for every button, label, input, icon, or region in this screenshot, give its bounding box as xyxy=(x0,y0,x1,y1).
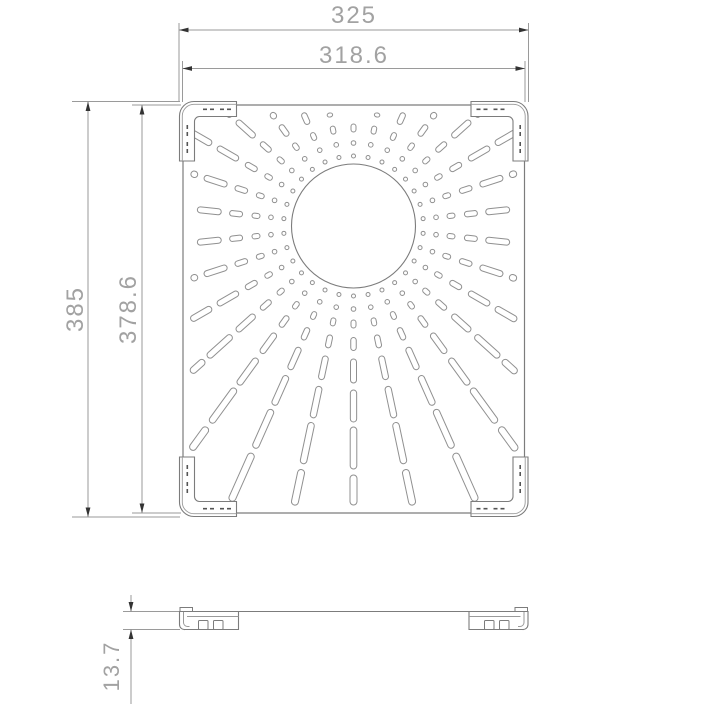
dimension-arrow xyxy=(519,28,529,33)
dimension-arrow xyxy=(129,630,134,640)
grid-hole-dot xyxy=(269,232,274,237)
dimension-arrow xyxy=(86,508,91,518)
grid-slot xyxy=(351,320,356,328)
grid-hole-dot xyxy=(279,265,284,270)
grid-hole-dot xyxy=(317,300,322,305)
grid-hole-dot xyxy=(352,294,356,298)
grid-hole-dot xyxy=(412,189,416,193)
dim-label-top-inner: 318.6 xyxy=(319,44,389,68)
dimension-arrow xyxy=(179,28,189,33)
grid-hole-dot xyxy=(290,279,295,284)
grid-slot xyxy=(229,235,243,242)
grid-hole-dot xyxy=(400,291,405,296)
grid-slot xyxy=(252,213,260,219)
grid-hole-dot xyxy=(413,168,418,173)
grid-slot xyxy=(447,213,455,219)
grid-hole-dot xyxy=(337,156,341,160)
grid-slot xyxy=(327,112,333,117)
dimension-arrow xyxy=(516,66,526,71)
grid-hole-dot xyxy=(291,189,295,193)
dimension-arrow xyxy=(140,105,145,115)
grid-hole-dot xyxy=(393,167,397,171)
profile-foot xyxy=(179,608,238,630)
dimension-arrow xyxy=(183,66,193,71)
grid-hole-dot xyxy=(434,232,439,237)
grid-hole-dot xyxy=(269,215,274,220)
grid-hole-dot xyxy=(393,281,397,285)
grid-hole-dot xyxy=(421,217,425,221)
grid-hole-dot xyxy=(282,217,286,221)
grid-hole-dot xyxy=(282,231,286,235)
grid-slot xyxy=(252,233,260,239)
grid-hole-dot xyxy=(285,246,289,250)
grid-hole-dot xyxy=(366,156,370,160)
grid-hole-dot xyxy=(272,198,277,203)
grid-hole-dot xyxy=(434,215,439,220)
grid-hole-dot xyxy=(279,182,284,187)
dim-label-side-thickness: 13.7 xyxy=(101,641,123,692)
dim-label-top-outer: 325 xyxy=(331,4,377,28)
sink-grid-drawing xyxy=(0,0,709,709)
grid-hole-dot xyxy=(334,143,339,148)
grid-hole-dot xyxy=(302,157,307,162)
grid-hole-dot xyxy=(418,246,422,250)
foot-notch xyxy=(199,621,209,630)
grid-hole-dot xyxy=(421,231,425,235)
grid-slot xyxy=(350,427,357,469)
grid-hole-dot xyxy=(291,259,295,263)
grid-hole-dot xyxy=(368,305,373,310)
foot-notch xyxy=(214,621,224,630)
grid-hole-dot xyxy=(412,259,416,263)
foot-notch xyxy=(485,621,495,630)
grid-hole-dot xyxy=(380,160,384,164)
grid-hole-dot xyxy=(423,265,428,270)
grid-hole-dot xyxy=(272,249,277,254)
grid-slot xyxy=(447,233,455,239)
grid-hole-dot xyxy=(337,292,341,296)
grid-slot xyxy=(350,390,356,422)
grid-hole-dot xyxy=(430,249,435,254)
dimension-arrow xyxy=(129,602,134,612)
dim-line-13-7 xyxy=(123,595,180,704)
side-profile-view xyxy=(179,608,528,630)
grid-slot xyxy=(464,210,478,217)
grid-hole-dot xyxy=(400,157,405,162)
grid-slot xyxy=(351,338,357,351)
grid-hole-dot xyxy=(302,291,307,296)
grid-hole-dot xyxy=(380,288,384,292)
grid-hole-dot xyxy=(323,288,327,292)
grid-hole-dot xyxy=(299,177,303,181)
grid-hole-dot xyxy=(366,292,370,296)
grid-hole-dot xyxy=(418,202,422,206)
grid-hole-dot xyxy=(310,167,314,171)
grid-hole-dot xyxy=(404,271,408,275)
foot-notch xyxy=(500,621,510,630)
grid-hole-dot xyxy=(385,300,390,305)
profile-foot xyxy=(469,608,528,630)
grid-hole-dot xyxy=(413,279,418,284)
grid-hole-dot xyxy=(323,160,327,164)
grid-hole-dot xyxy=(430,198,435,203)
grid-hole-dot xyxy=(368,143,373,148)
grid-hole-dot xyxy=(299,271,303,275)
dimension-arrow xyxy=(86,102,91,112)
grid-hole-dot xyxy=(317,148,322,153)
dim-label-left-outer: 385 xyxy=(64,286,88,332)
grid-slot xyxy=(351,124,356,132)
front-view xyxy=(180,102,529,517)
grid-hole-dot xyxy=(351,307,356,312)
grid-slot xyxy=(374,112,380,117)
grid-hole-dot xyxy=(290,168,295,173)
grid-hole-dot xyxy=(404,177,408,181)
grid-hole-dot xyxy=(423,182,428,187)
grid-hole-dot xyxy=(351,141,356,146)
grid-hole-dot xyxy=(285,202,289,206)
grid-hole-dot xyxy=(310,281,314,285)
grid-slot xyxy=(464,235,478,242)
grid-hole-dot xyxy=(385,148,390,153)
technical-drawing-page: 325 318.6 385 378.6 13.7 xyxy=(0,0,709,709)
grid-slot xyxy=(351,359,357,383)
grid-slot xyxy=(350,475,357,505)
grid-hole-dot xyxy=(352,154,356,158)
dimension-arrow xyxy=(140,504,145,514)
grid-slot xyxy=(229,210,243,217)
dim-label-left-inner: 378.6 xyxy=(117,274,141,344)
grid-hole-dot xyxy=(334,305,339,310)
